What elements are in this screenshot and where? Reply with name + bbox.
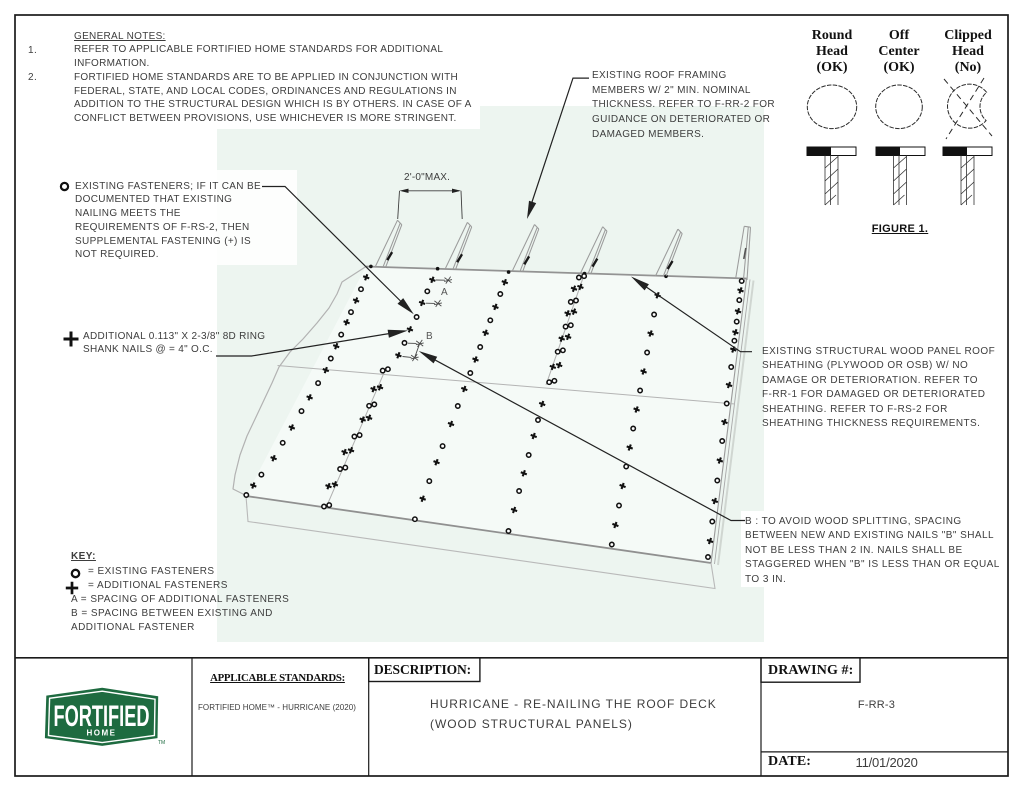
svg-text:TM: TM <box>158 740 165 746</box>
svg-text:HOME: HOME <box>87 729 117 738</box>
